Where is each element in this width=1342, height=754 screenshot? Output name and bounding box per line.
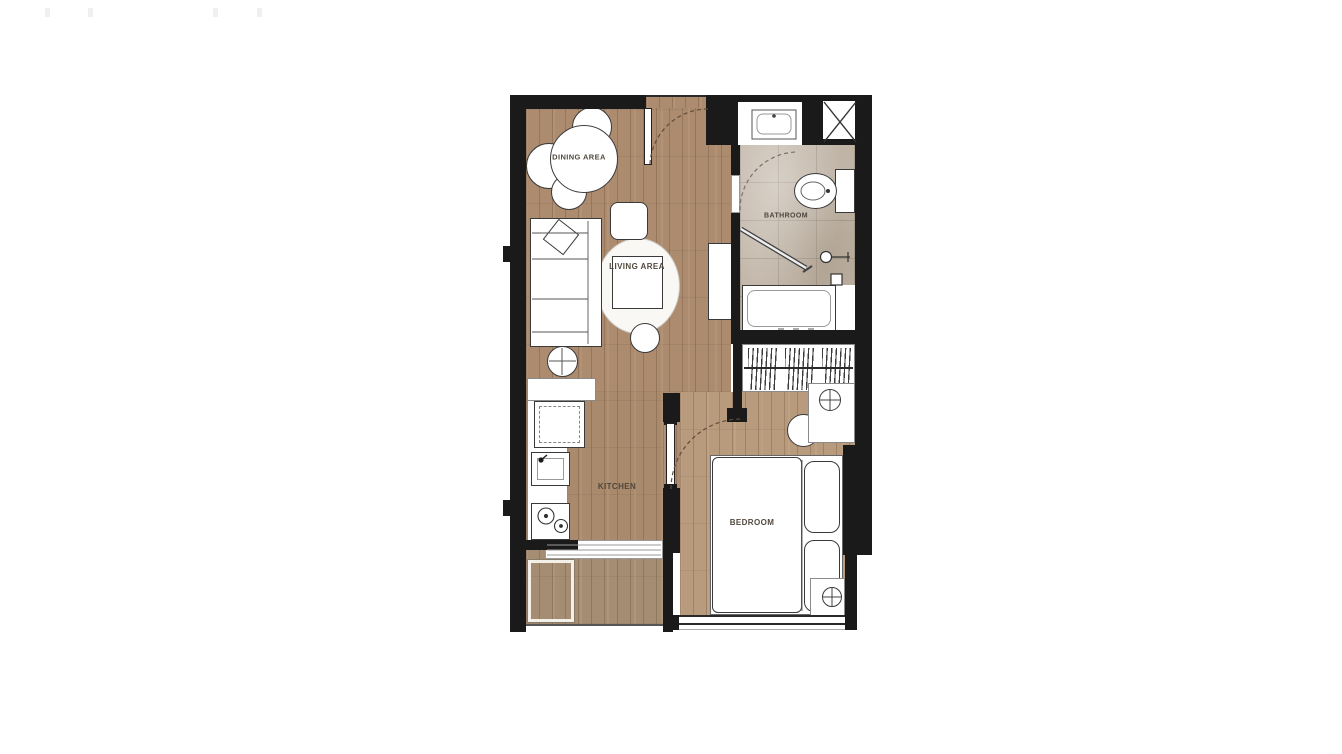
hanging-clothes <box>748 348 778 390</box>
dining-area-label: DINING AREA <box>552 153 606 161</box>
edge-artifact <box>88 8 93 17</box>
kitchen-counter <box>527 378 596 401</box>
service-shaft-void <box>823 101 857 139</box>
bathroom-door <box>731 175 740 213</box>
refrigerator <box>534 401 585 448</box>
side-table <box>547 346 578 377</box>
left-wall <box>510 95 526 632</box>
pouf <box>630 323 660 353</box>
pillow <box>804 461 840 533</box>
floor-plan-image: DINING AREA LIVING AREA BATHROOM KITCHEN… <box>0 0 1342 754</box>
bedroom-wall <box>663 488 680 553</box>
toilet <box>794 173 837 209</box>
kitchen-wall <box>520 540 578 550</box>
window-glass-line <box>673 623 853 625</box>
bathroom-wall <box>731 145 740 175</box>
balcony-panel <box>528 560 574 622</box>
table-lamp <box>822 587 842 607</box>
bathtub-inner <box>747 290 831 327</box>
sink-basin <box>537 458 564 480</box>
entry-door <box>644 108 652 165</box>
floor-cushion <box>610 202 648 240</box>
bedroom-door <box>666 423 675 486</box>
table-lamp <box>819 389 841 411</box>
bathroom-wall <box>731 213 740 336</box>
vanity-counter <box>738 102 802 145</box>
bedroom-wall-stub <box>727 408 747 422</box>
living-area-label: LIVING AREA <box>609 263 665 271</box>
top-wall <box>736 95 808 102</box>
bathtub <box>742 285 836 332</box>
bathtub-ledge <box>836 285 855 332</box>
wall-column <box>503 246 526 262</box>
edge-artifact <box>257 8 262 17</box>
entry-wall-column <box>706 95 738 145</box>
kitchen-sink <box>531 452 570 486</box>
refrigerator-dashes <box>539 406 580 443</box>
right-wall-lower <box>845 555 857 630</box>
cooktop <box>531 503 570 540</box>
right-wall-thick <box>843 445 857 555</box>
toilet-tank <box>835 169 855 213</box>
balcony-wall <box>663 553 673 632</box>
mattress <box>712 457 802 613</box>
bathroom-wall <box>731 330 856 344</box>
wall-column <box>503 500 526 516</box>
right-wall <box>855 95 872 555</box>
entry-threshold <box>646 95 706 97</box>
kitchen-label: KITCHEN <box>598 483 636 491</box>
bedroom-label: BEDROOM <box>730 519 775 527</box>
edge-artifact <box>45 8 50 17</box>
bedroom-window <box>671 615 855 630</box>
edge-artifact <box>213 8 218 17</box>
bathroom-label: BATHROOM <box>764 213 808 220</box>
top-wall <box>510 95 646 109</box>
